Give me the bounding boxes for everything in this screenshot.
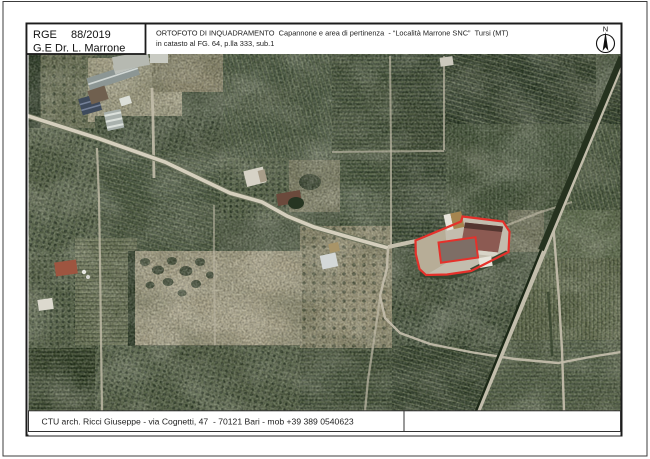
svg-text:CTU arch. Ricci Giuseppe - via: CTU arch. Ricci Giuseppe - via Cognetti,…: [42, 417, 354, 427]
svg-text:RGE: RGE: [33, 29, 57, 41]
svg-text:in catasto al FG. 64, p.lla 33: in catasto al FG. 64, p.lla 333, sub.1: [156, 39, 274, 48]
svg-text:G.E Dr. L. Marrone: G.E Dr. L. Marrone: [33, 42, 125, 54]
svg-text:88/2019: 88/2019: [71, 29, 111, 41]
svg-text:ORTOFOTO DI INQUADRAMENTO Cap: ORTOFOTO DI INQUADRAMENTO Capannone e ar…: [156, 29, 508, 38]
